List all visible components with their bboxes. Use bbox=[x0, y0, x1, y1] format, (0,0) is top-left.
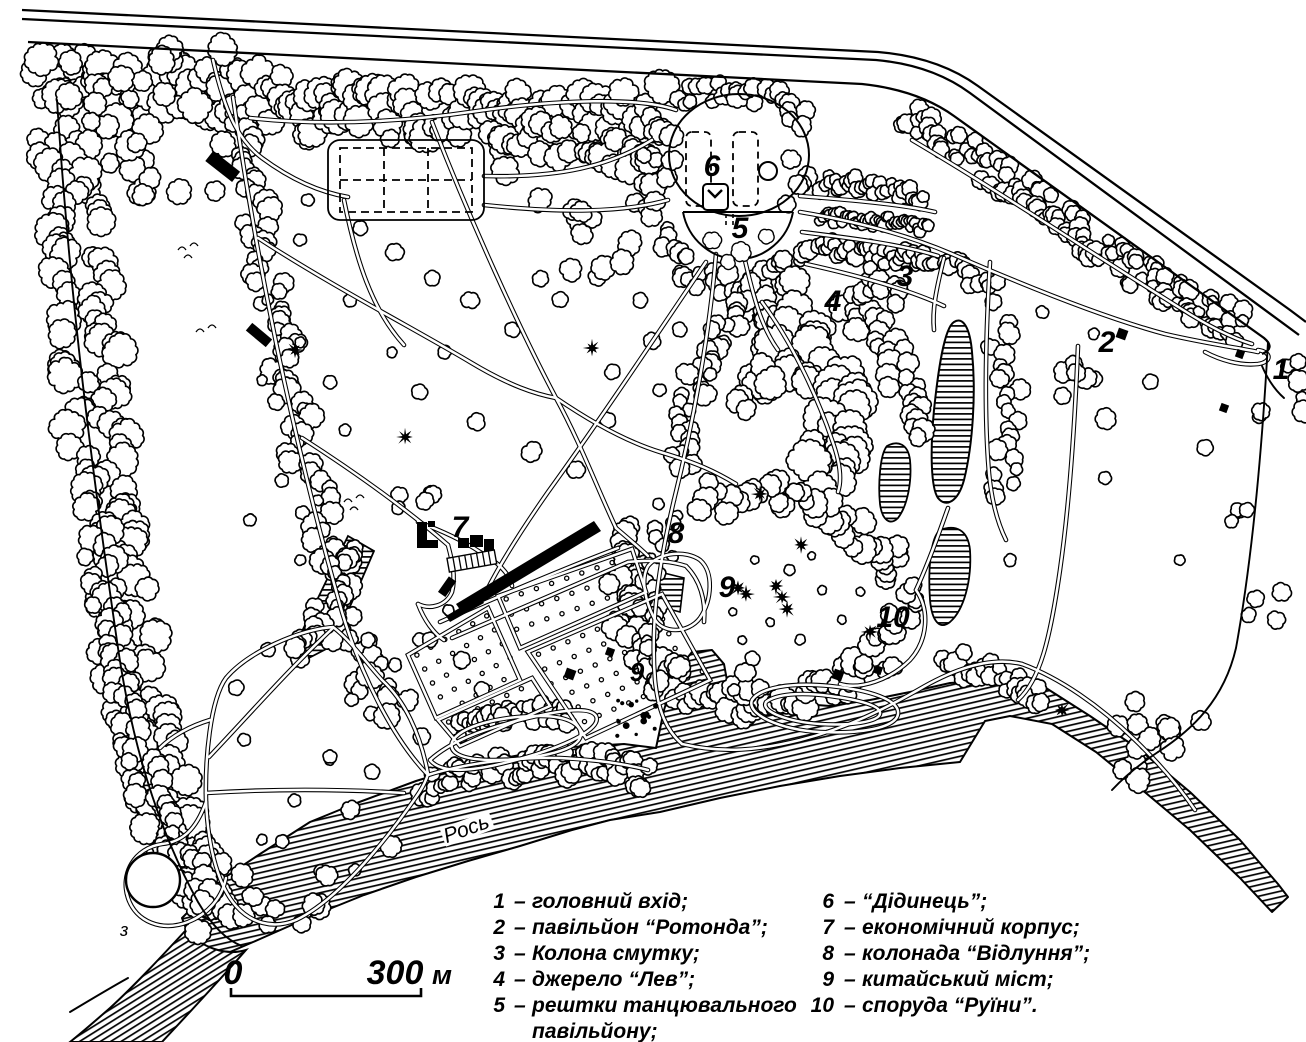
svg-text:–: – bbox=[514, 994, 526, 1017]
svg-text:–: – bbox=[844, 890, 856, 913]
svg-text:1: 1 bbox=[1273, 353, 1290, 386]
svg-text:–: – bbox=[514, 968, 526, 991]
svg-text:6: 6 bbox=[704, 150, 721, 183]
svg-text:–: – bbox=[514, 890, 526, 913]
svg-text:головний вхід;: головний вхід; bbox=[532, 890, 688, 913]
svg-text:8: 8 bbox=[668, 517, 685, 550]
svg-text:9: 9 bbox=[719, 571, 736, 604]
svg-text:колонада “Відлуння”;: колонада “Відлуння”; bbox=[862, 942, 1090, 965]
svg-text:7: 7 bbox=[822, 916, 835, 939]
svg-text:–: – bbox=[844, 942, 856, 965]
svg-text:павільйону;: павільйону; bbox=[532, 1020, 658, 1042]
svg-text:рештки танцювального: рештки танцювального bbox=[531, 994, 797, 1017]
svg-text:китайський міст;: китайський міст; bbox=[862, 968, 1054, 991]
svg-text:–: – bbox=[844, 916, 856, 939]
svg-text:економічний корпус;: економічний корпус; bbox=[862, 916, 1080, 939]
svg-text:з: з bbox=[119, 920, 128, 940]
svg-text:–: – bbox=[514, 942, 526, 965]
svg-text:павільйон “Ротонда”;: павільйон “Ротонда”; bbox=[532, 916, 768, 939]
svg-text:3: 3 bbox=[897, 260, 914, 293]
svg-text:–: – bbox=[514, 916, 526, 939]
svg-text:7: 7 bbox=[452, 511, 470, 544]
svg-text:5: 5 bbox=[732, 212, 750, 245]
svg-text:0: 0 bbox=[224, 954, 243, 992]
svg-text:–: – bbox=[844, 968, 856, 991]
svg-text:9: 9 bbox=[822, 968, 834, 991]
svg-text:10: 10 bbox=[876, 601, 910, 634]
svg-text:3: 3 bbox=[493, 942, 505, 965]
svg-text:споруда “Руїни”.: споруда “Руїни”. bbox=[862, 994, 1038, 1017]
svg-text:4: 4 bbox=[824, 285, 842, 318]
svg-text:8: 8 bbox=[822, 942, 834, 965]
svg-text:2: 2 bbox=[492, 916, 505, 939]
svg-text:300: 300 bbox=[367, 954, 424, 992]
svg-text:2: 2 bbox=[1098, 326, 1116, 359]
svg-text:10: 10 bbox=[811, 994, 835, 1017]
svg-text:Колона смутку;: Колона смутку; bbox=[532, 942, 700, 965]
svg-text:6: 6 bbox=[822, 890, 834, 913]
svg-text:4: 4 bbox=[492, 968, 505, 991]
svg-text:1: 1 bbox=[493, 890, 505, 913]
svg-text:–: – bbox=[844, 994, 856, 1017]
svg-text:“Дідинець”;: “Дідинець”; bbox=[862, 890, 987, 913]
svg-text:м: м bbox=[432, 960, 452, 990]
svg-text:9: 9 bbox=[630, 657, 645, 687]
svg-text:5: 5 bbox=[493, 994, 505, 1017]
svg-text:джерело “Лев”;: джерело “Лев”; bbox=[532, 968, 695, 991]
